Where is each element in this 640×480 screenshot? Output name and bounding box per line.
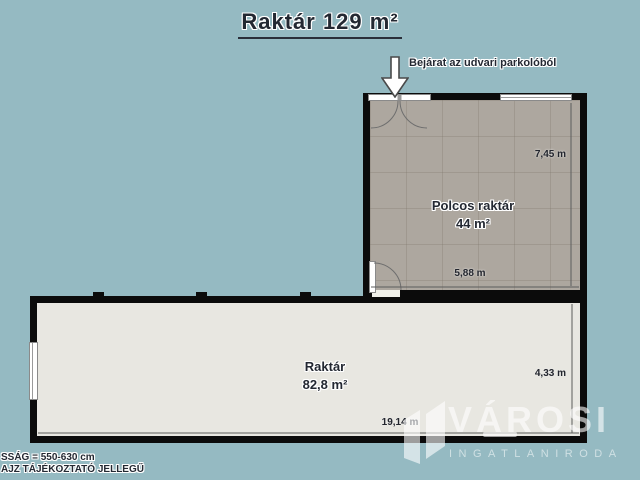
main-storage-label: Raktár 82,8 m² (265, 358, 385, 394)
top-wall-window (500, 94, 572, 101)
connecting-door-opening (372, 290, 400, 297)
disclaimer-note: AJZ TÁJÉKOZTATÓ JELLEGŰ (1, 464, 144, 475)
wall-pillar (300, 292, 311, 296)
watermark-brand: VÁROSI (448, 399, 610, 441)
dimension-label: 7,45 m (516, 149, 566, 160)
dimension-label: 5,88 m (430, 268, 510, 279)
shelf-storage-label: Polcos raktár 44 m² (393, 197, 553, 233)
watermark-subtitle: INGATLANIRODA (449, 448, 623, 460)
wall-pillar (196, 292, 207, 296)
entrance-label: Bejárat az udvari parkolóból (409, 57, 556, 69)
watermark-underbar (483, 432, 517, 437)
connecting-door-leaf (369, 261, 376, 293)
main-storage-area: 82,8 m² (265, 376, 385, 394)
left-wall-window (29, 342, 38, 400)
wall-pillar (93, 292, 104, 296)
ceiling-height-note: SSÁG = 550-630 cm (1, 452, 95, 463)
entrance-arrow-icon (381, 56, 409, 98)
shelf-storage-name: Polcos raktár (393, 197, 553, 215)
title-bar: Raktár 129 m² (0, 9, 640, 39)
main-storage-name: Raktár (265, 358, 385, 376)
dimension-label: 4,33 m (516, 368, 566, 379)
shelf-storage-area: 44 m² (393, 215, 553, 233)
buildings-icon (402, 398, 448, 466)
page-title: Raktár 129 m² (238, 9, 401, 39)
shelf-storage-room (363, 93, 587, 297)
